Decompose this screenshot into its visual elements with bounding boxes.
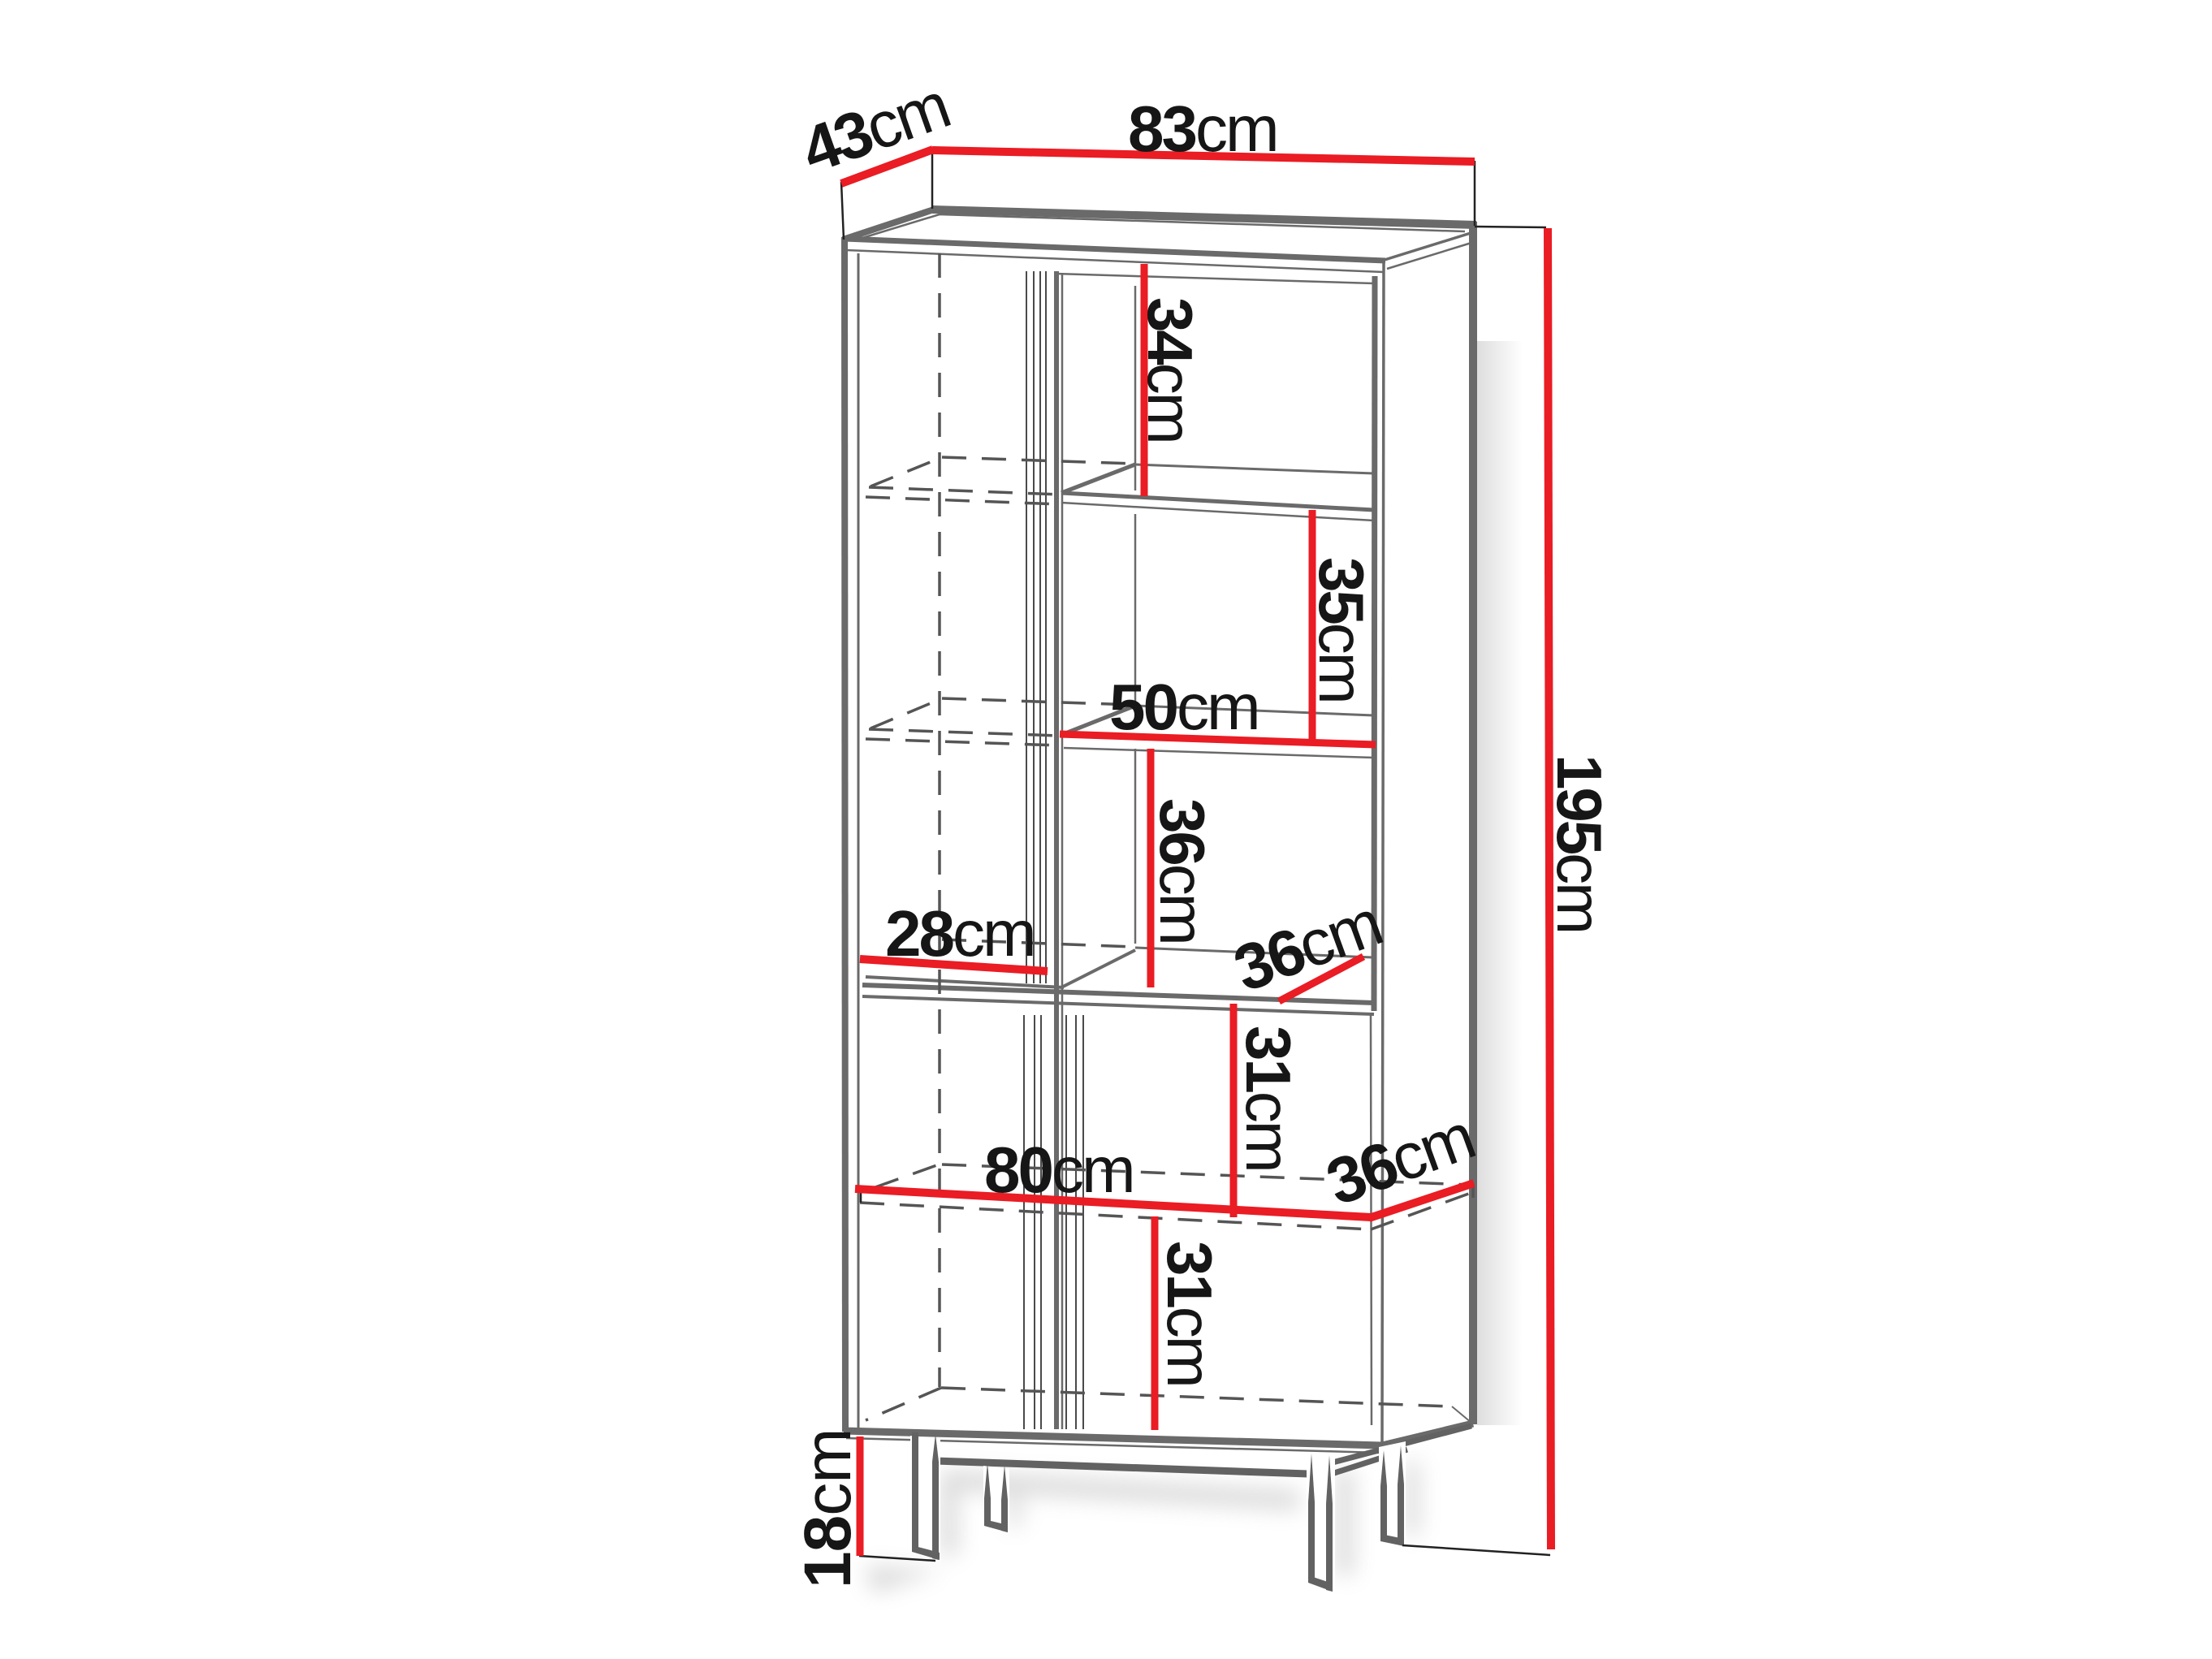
svg-text:50cm: 50cm xyxy=(1109,671,1259,743)
svg-text:195cm: 195cm xyxy=(1544,754,1615,932)
svg-text:28cm: 28cm xyxy=(885,897,1035,970)
svg-text:18cm: 18cm xyxy=(791,1428,865,1588)
svg-text:83cm: 83cm xyxy=(1128,93,1277,165)
svg-text:36cm: 36cm xyxy=(1147,798,1218,944)
svg-text:35cm: 35cm xyxy=(1306,557,1377,702)
svg-text:31cm: 31cm xyxy=(1233,1026,1304,1171)
svg-text:31cm: 31cm xyxy=(1154,1241,1225,1386)
svg-text:80cm: 80cm xyxy=(984,1134,1134,1206)
svg-text:34cm: 34cm xyxy=(1134,297,1206,443)
